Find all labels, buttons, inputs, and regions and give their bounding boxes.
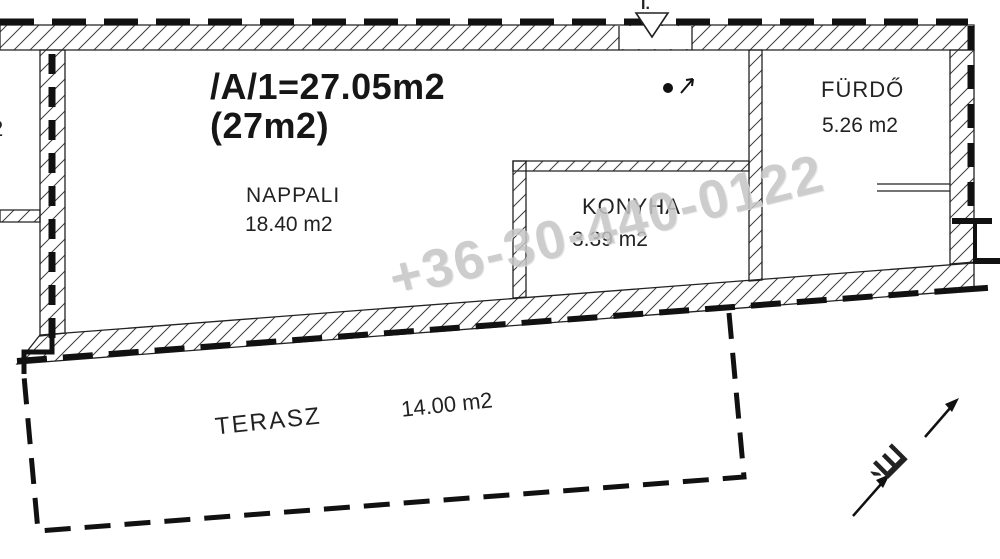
entrance-marker-label: I. <box>641 0 650 14</box>
plan-title-line1: /A/1=27.05m2 <box>210 66 445 108</box>
left-stub-wall <box>0 210 40 222</box>
room-area-furdo: 5.26 m2 <box>822 114 898 138</box>
left-edge-partial-label: 2 <box>0 116 3 142</box>
top-wall <box>0 25 974 50</box>
plan-title-line2: (27m2) <box>210 105 329 147</box>
floor-plan-page: /A/1=27.05m2 (27m2) NAPPALI 18.40 m2 KON… <box>0 0 1000 559</box>
room-label-nappali: NAPPALI <box>246 184 340 208</box>
door-indicator-icon <box>663 79 693 93</box>
room-label-furdo: FÜRDŐ <box>821 77 904 103</box>
bathroom-fixture <box>877 184 950 191</box>
room-area-nappali: 18.40 m2 <box>245 213 333 237</box>
